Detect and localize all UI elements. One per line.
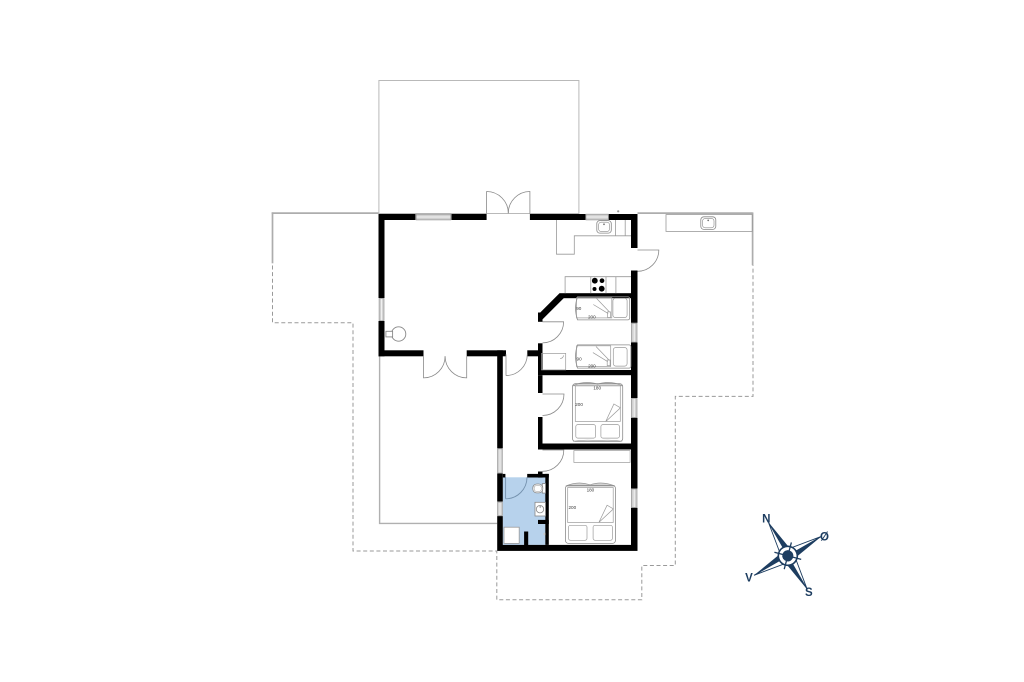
- svg-text:90: 90: [576, 306, 582, 311]
- svg-text:180: 180: [593, 386, 601, 391]
- svg-text:90: 90: [577, 356, 583, 361]
- svg-text:S: S: [805, 587, 813, 599]
- svg-text:200: 200: [575, 402, 583, 407]
- svg-text:200: 200: [568, 505, 576, 510]
- svg-text:180: 180: [587, 488, 595, 493]
- svg-text:V: V: [745, 573, 753, 585]
- svg-text:200: 200: [588, 314, 596, 319]
- svg-text:Ø: Ø: [820, 532, 829, 544]
- svg-text:200: 200: [588, 364, 596, 369]
- svg-text:N: N: [762, 514, 770, 526]
